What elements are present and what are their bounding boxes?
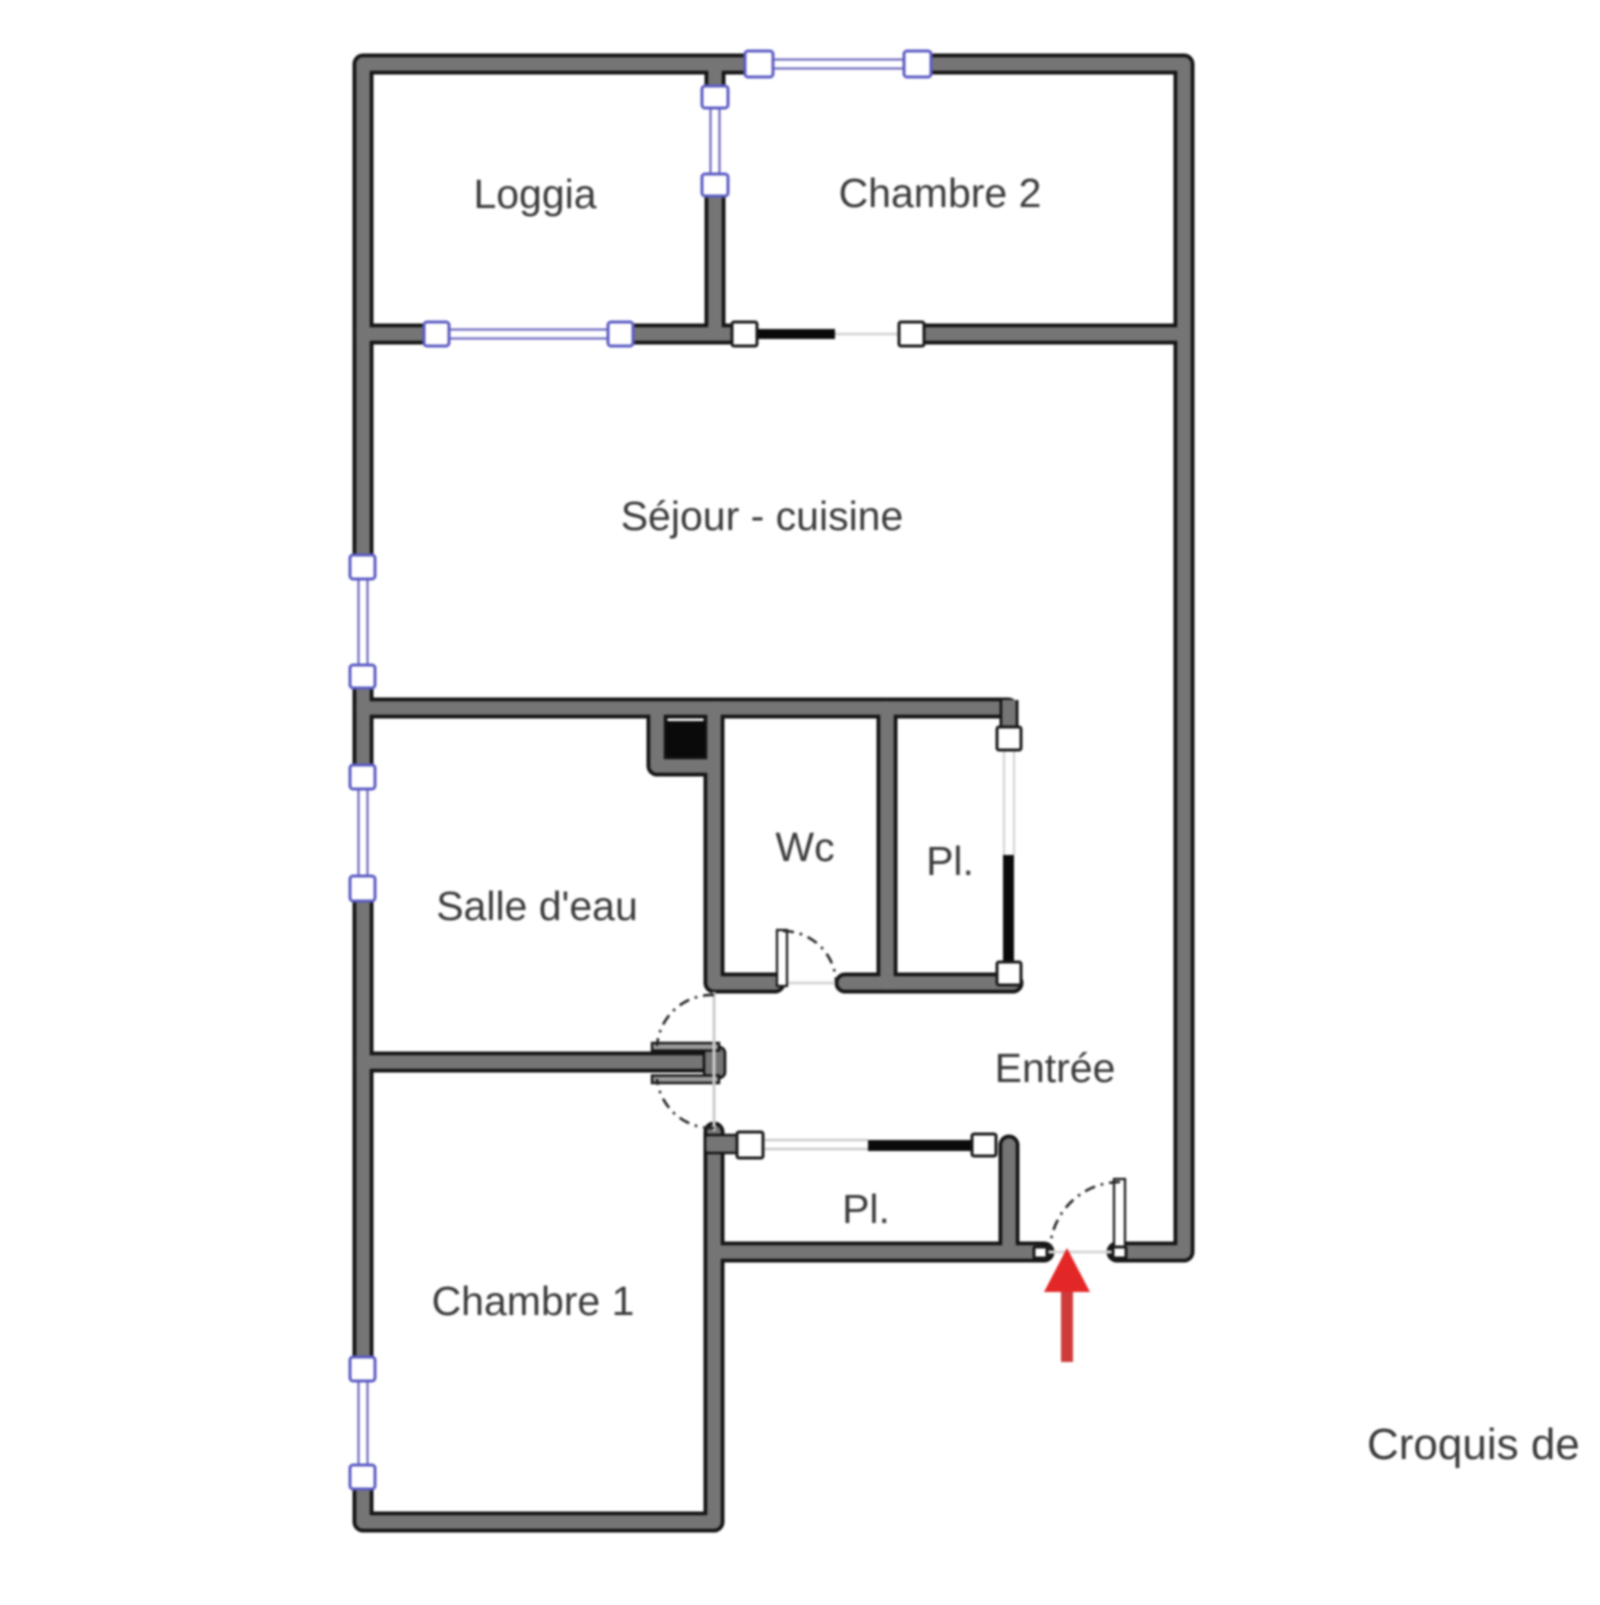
svg-text:Croquis de: Croquis de (1367, 1420, 1580, 1469)
svg-text:Loggia: Loggia (473, 171, 596, 217)
svg-text:Pl.: Pl. (926, 838, 974, 884)
svg-text:Entrée: Entrée (995, 1045, 1116, 1091)
svg-text:Salle d'eau: Salle d'eau (436, 883, 638, 929)
svg-text:Chambre 1: Chambre 1 (432, 1278, 635, 1324)
svg-text:Chambre 2: Chambre 2 (839, 170, 1042, 216)
svg-text:Wc: Wc (775, 824, 834, 870)
svg-text:Pl.: Pl. (842, 1186, 890, 1232)
svg-text:Séjour - cuisine: Séjour - cuisine (621, 493, 904, 539)
